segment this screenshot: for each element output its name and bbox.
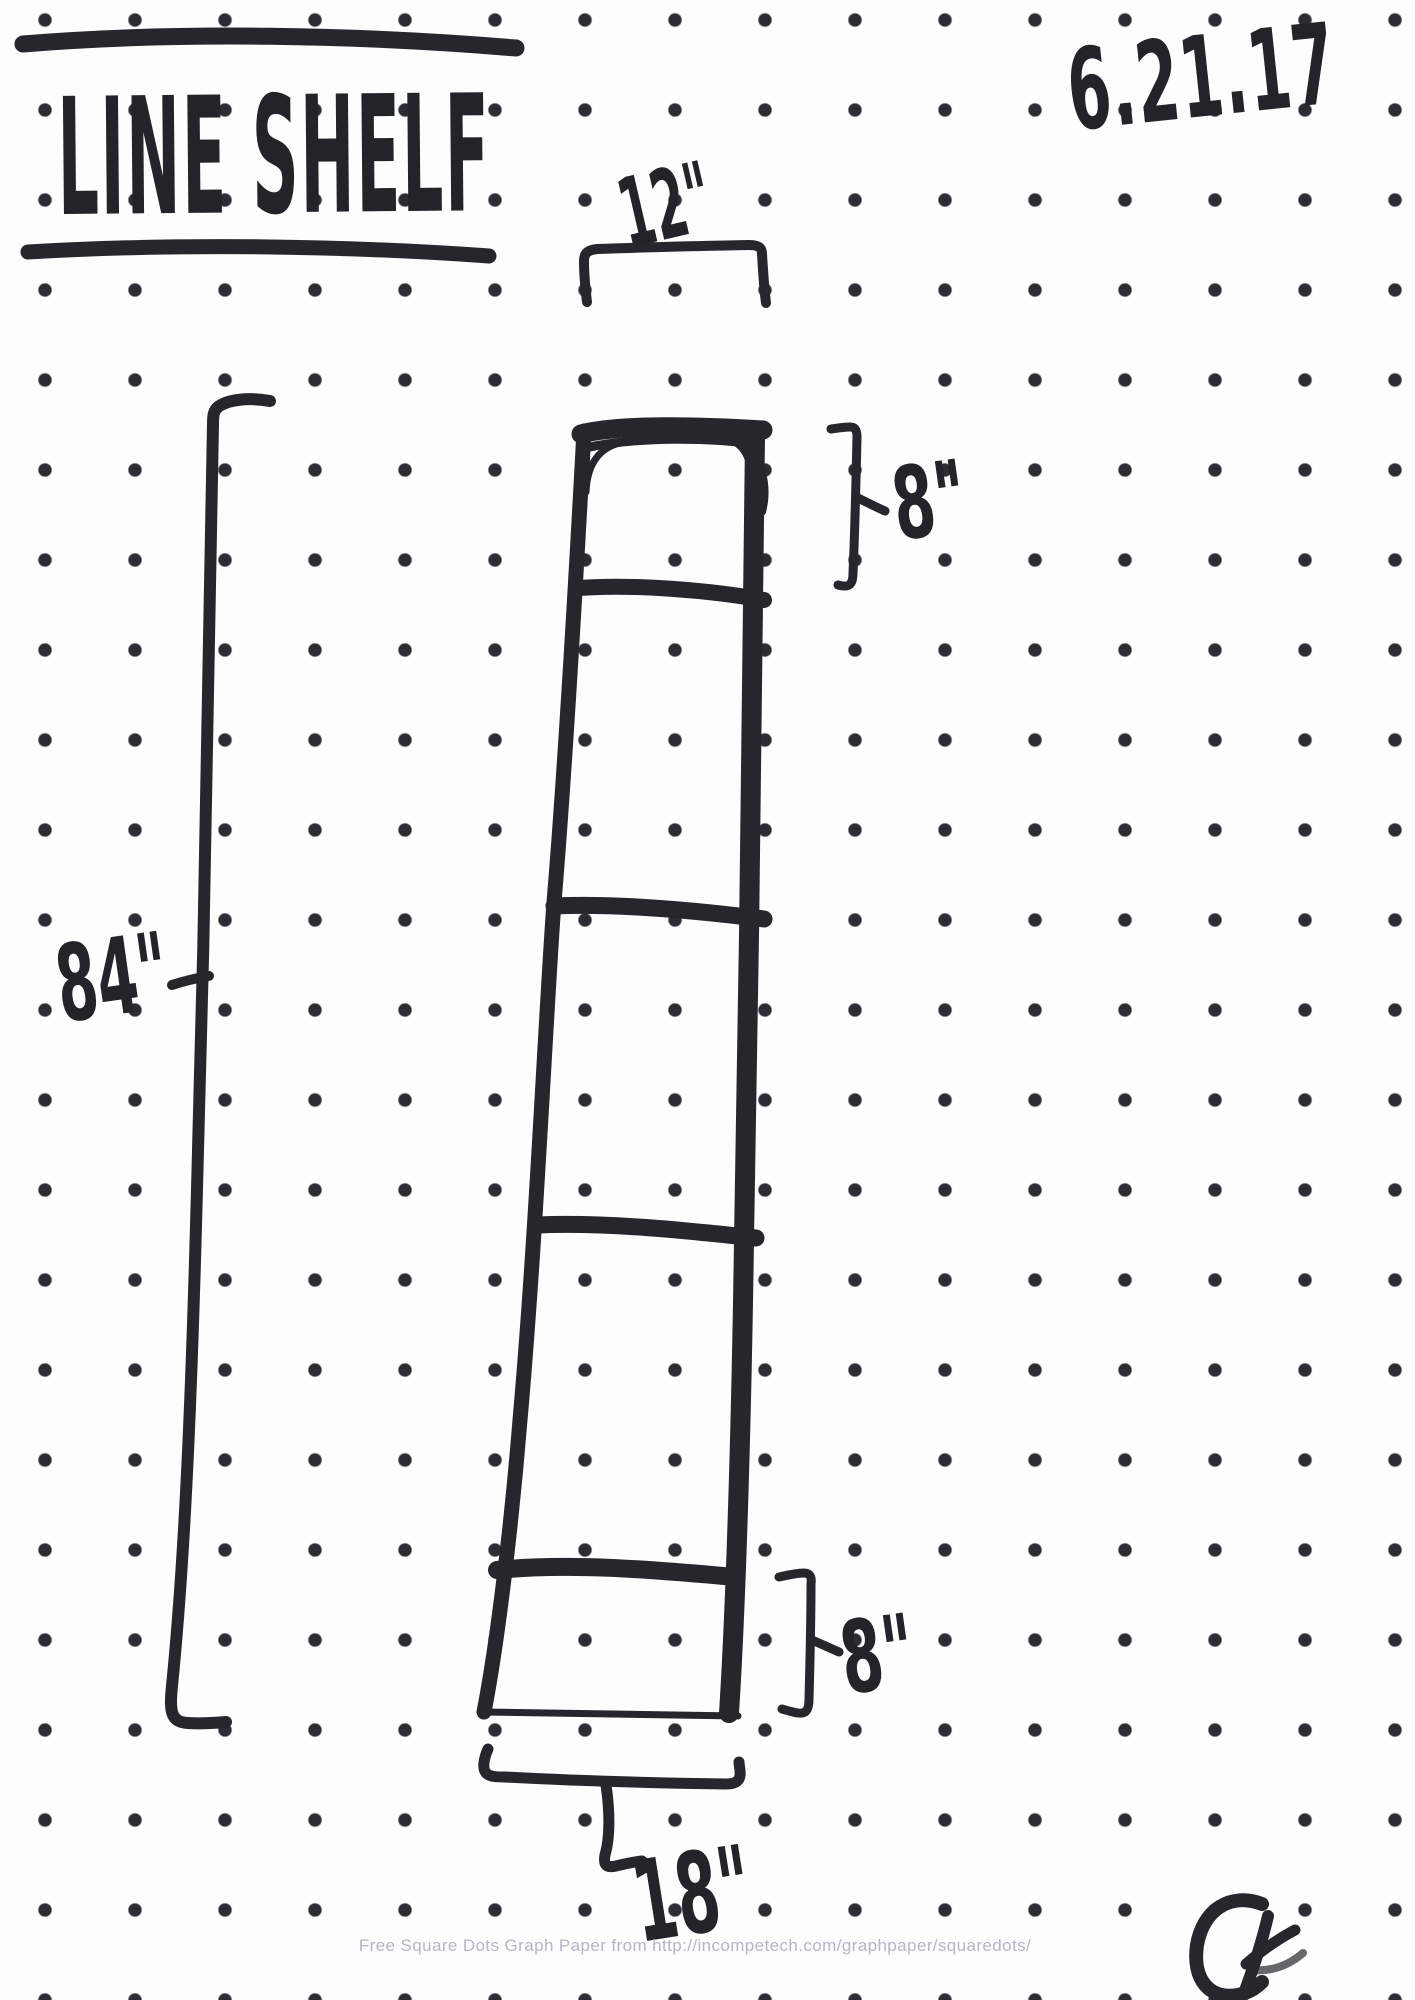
bottom-compartment-bracket [779, 1573, 811, 1713]
shelf-top-inner-corner [586, 438, 753, 492]
shelf-top-edge [581, 427, 763, 434]
shelf-left-side [484, 431, 584, 1712]
shelf-divider-4 [497, 1567, 736, 1577]
graph-paper-page: LINE SHELF 6.21.17 12" 84" 8" [0, 0, 1415, 2000]
shelf-right-side [729, 437, 755, 1713]
shelf-bottom-edge [483, 1712, 738, 1716]
shelf-divider-1 [579, 587, 764, 600]
bottom-compartment-tick [812, 1640, 839, 1652]
shelf-divider-3 [537, 1224, 756, 1238]
bottom-compartment-label: 8" [833, 1593, 922, 1718]
signature-initials [1196, 1900, 1303, 1996]
top-compartment-bracket [831, 427, 857, 586]
height-label: 84" [49, 911, 176, 1048]
shelf-sketch: LINE SHELF 6.21.17 12" 84" 8" [0, 0, 1415, 2000]
height-bracket [171, 399, 270, 1723]
bottom-width-bracket [484, 1749, 740, 1784]
watermark-text: Free Square Dots Graph Paper from http:/… [295, 1936, 1095, 1956]
shelf-divider-2 [554, 905, 764, 919]
title-box-top-line [23, 36, 516, 48]
shelf-outline [483, 427, 766, 1716]
top-compartment-label: 8" [885, 439, 974, 564]
sketch-title: LINE SHELF [57, 61, 492, 254]
top-compartment-tick [856, 497, 885, 511]
date-text: 6.21.17 [1061, 0, 1342, 157]
